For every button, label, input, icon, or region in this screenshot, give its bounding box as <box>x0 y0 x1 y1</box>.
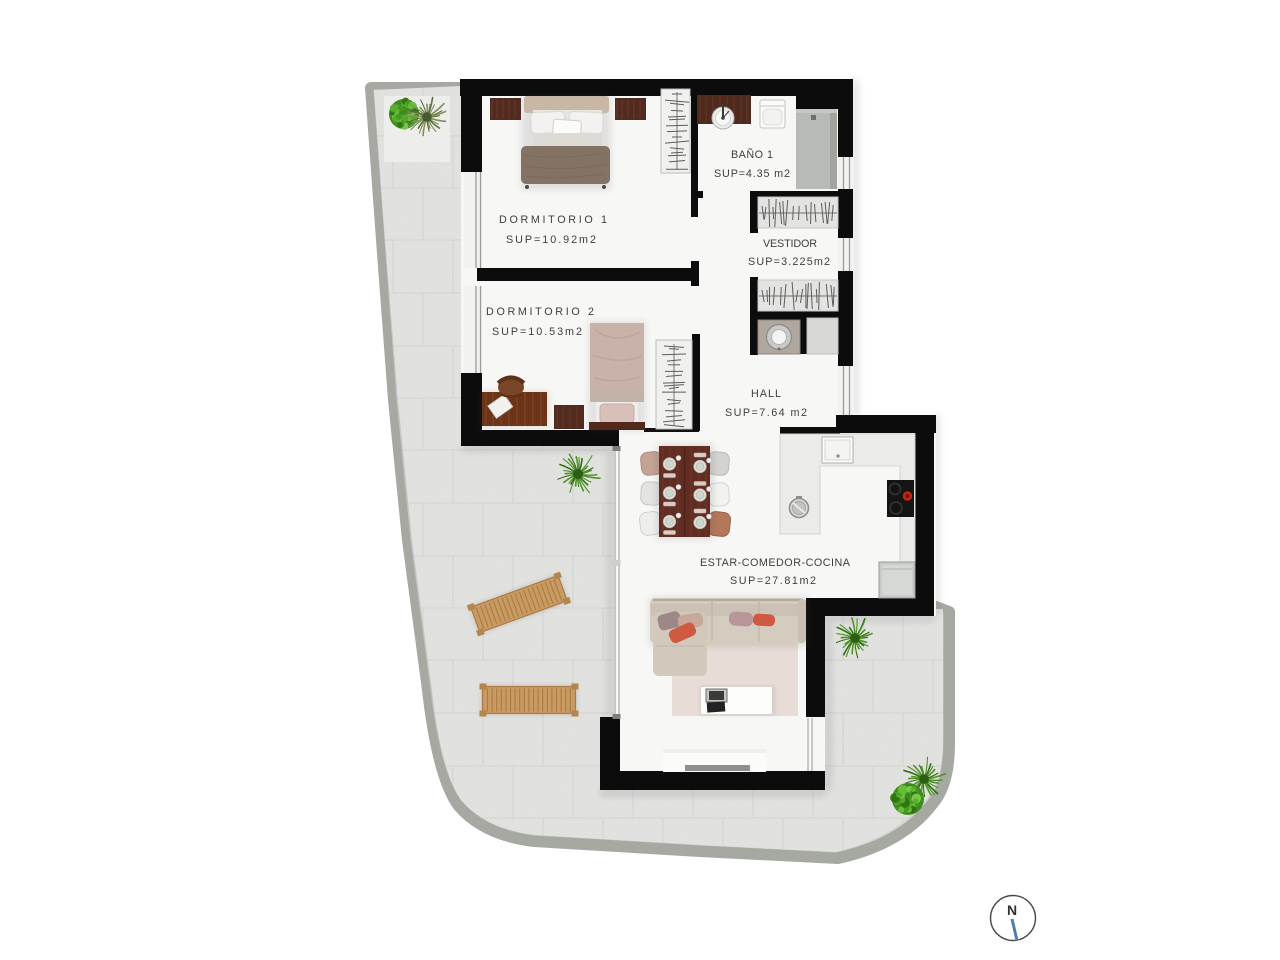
svg-text:SUP=4.35 m2: SUP=4.35 m2 <box>714 168 790 180</box>
svg-text:BAÑO 1: BAÑO 1 <box>731 148 773 161</box>
svg-text:DORMITORIO 1: DORMITORIO 1 <box>499 214 607 226</box>
svg-text:HALL: HALL <box>751 388 781 400</box>
svg-text:ESTAR-COMEDOR-COCINA: ESTAR-COMEDOR-COCINA <box>700 557 851 569</box>
svg-text:SUP=27.81m2: SUP=27.81m2 <box>730 575 816 587</box>
svg-text:SUP=10.53m2: SUP=10.53m2 <box>492 326 582 338</box>
svg-text:VESTIDOR: VESTIDOR <box>763 238 817 250</box>
svg-text:SUP=3.225m2: SUP=3.225m2 <box>748 256 830 268</box>
svg-text:SUP=7.64 m2: SUP=7.64 m2 <box>725 407 807 419</box>
svg-text:N: N <box>1007 902 1017 918</box>
svg-text:DORMITORIO 2: DORMITORIO 2 <box>486 306 594 318</box>
svg-text:SUP=10.92m2: SUP=10.92m2 <box>506 234 596 246</box>
